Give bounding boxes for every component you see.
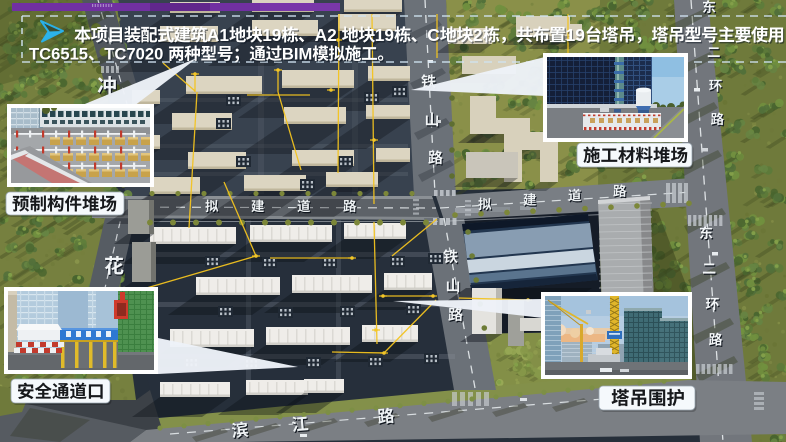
svg-text:A1: A1 (207, 25, 229, 45)
svg-text:TC6515: TC6515 (29, 45, 88, 64)
svg-text:19: 19 (375, 25, 394, 45)
svg-text:19: 19 (262, 25, 281, 45)
svg-text:A2: A2 (315, 25, 337, 45)
svg-text:TC7020: TC7020 (104, 45, 163, 64)
svg-text:2: 2 (473, 25, 483, 45)
svg-text:BIM: BIM (282, 45, 312, 64)
svg-text:C: C (427, 25, 439, 45)
svg-text:19: 19 (566, 25, 585, 45)
